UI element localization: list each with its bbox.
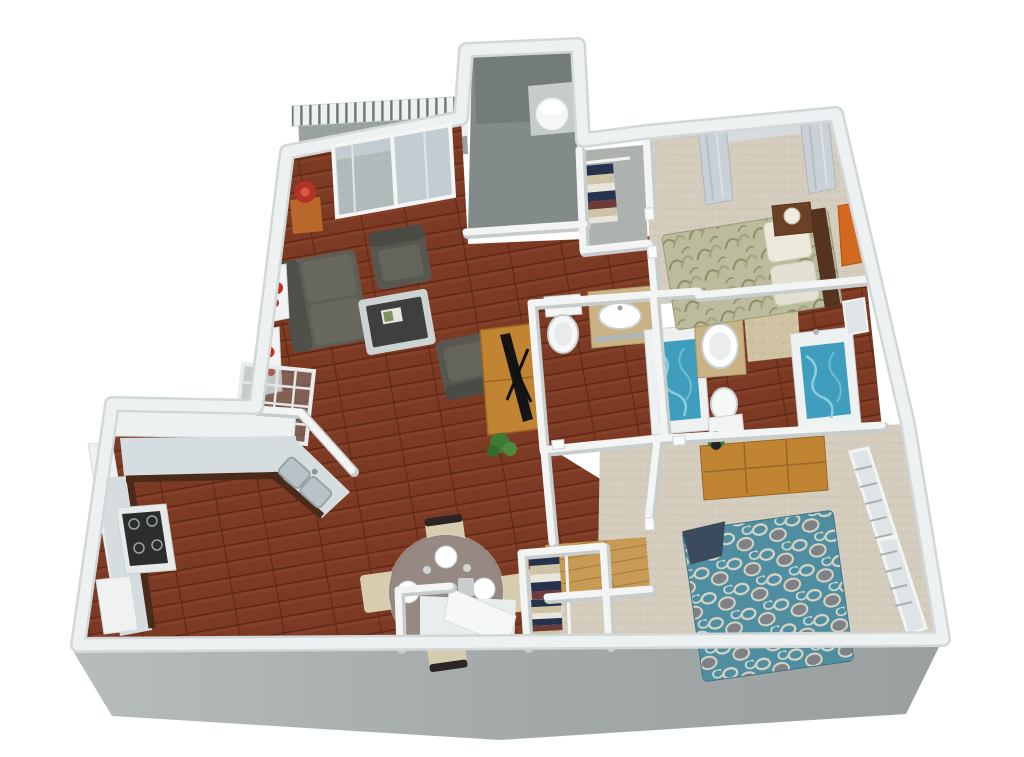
base-cabinets [126, 475, 294, 479]
floor-lamp-top [301, 188, 310, 197]
sofa [278, 249, 371, 353]
tub-faucet [813, 329, 819, 335]
refrigerator [96, 576, 138, 634]
coffee-table [358, 288, 437, 355]
nightstand [772, 202, 813, 236]
glass-reflection [337, 150, 395, 215]
range [116, 504, 176, 574]
armchair [367, 224, 432, 291]
floorplan-render [0, 0, 1024, 757]
table-lamp [784, 208, 800, 224]
bathroom-2-window [843, 298, 868, 335]
bathtub [790, 327, 861, 431]
water-heater-top [540, 101, 564, 115]
floorplan-svg [0, 0, 1024, 757]
bed [682, 506, 854, 682]
